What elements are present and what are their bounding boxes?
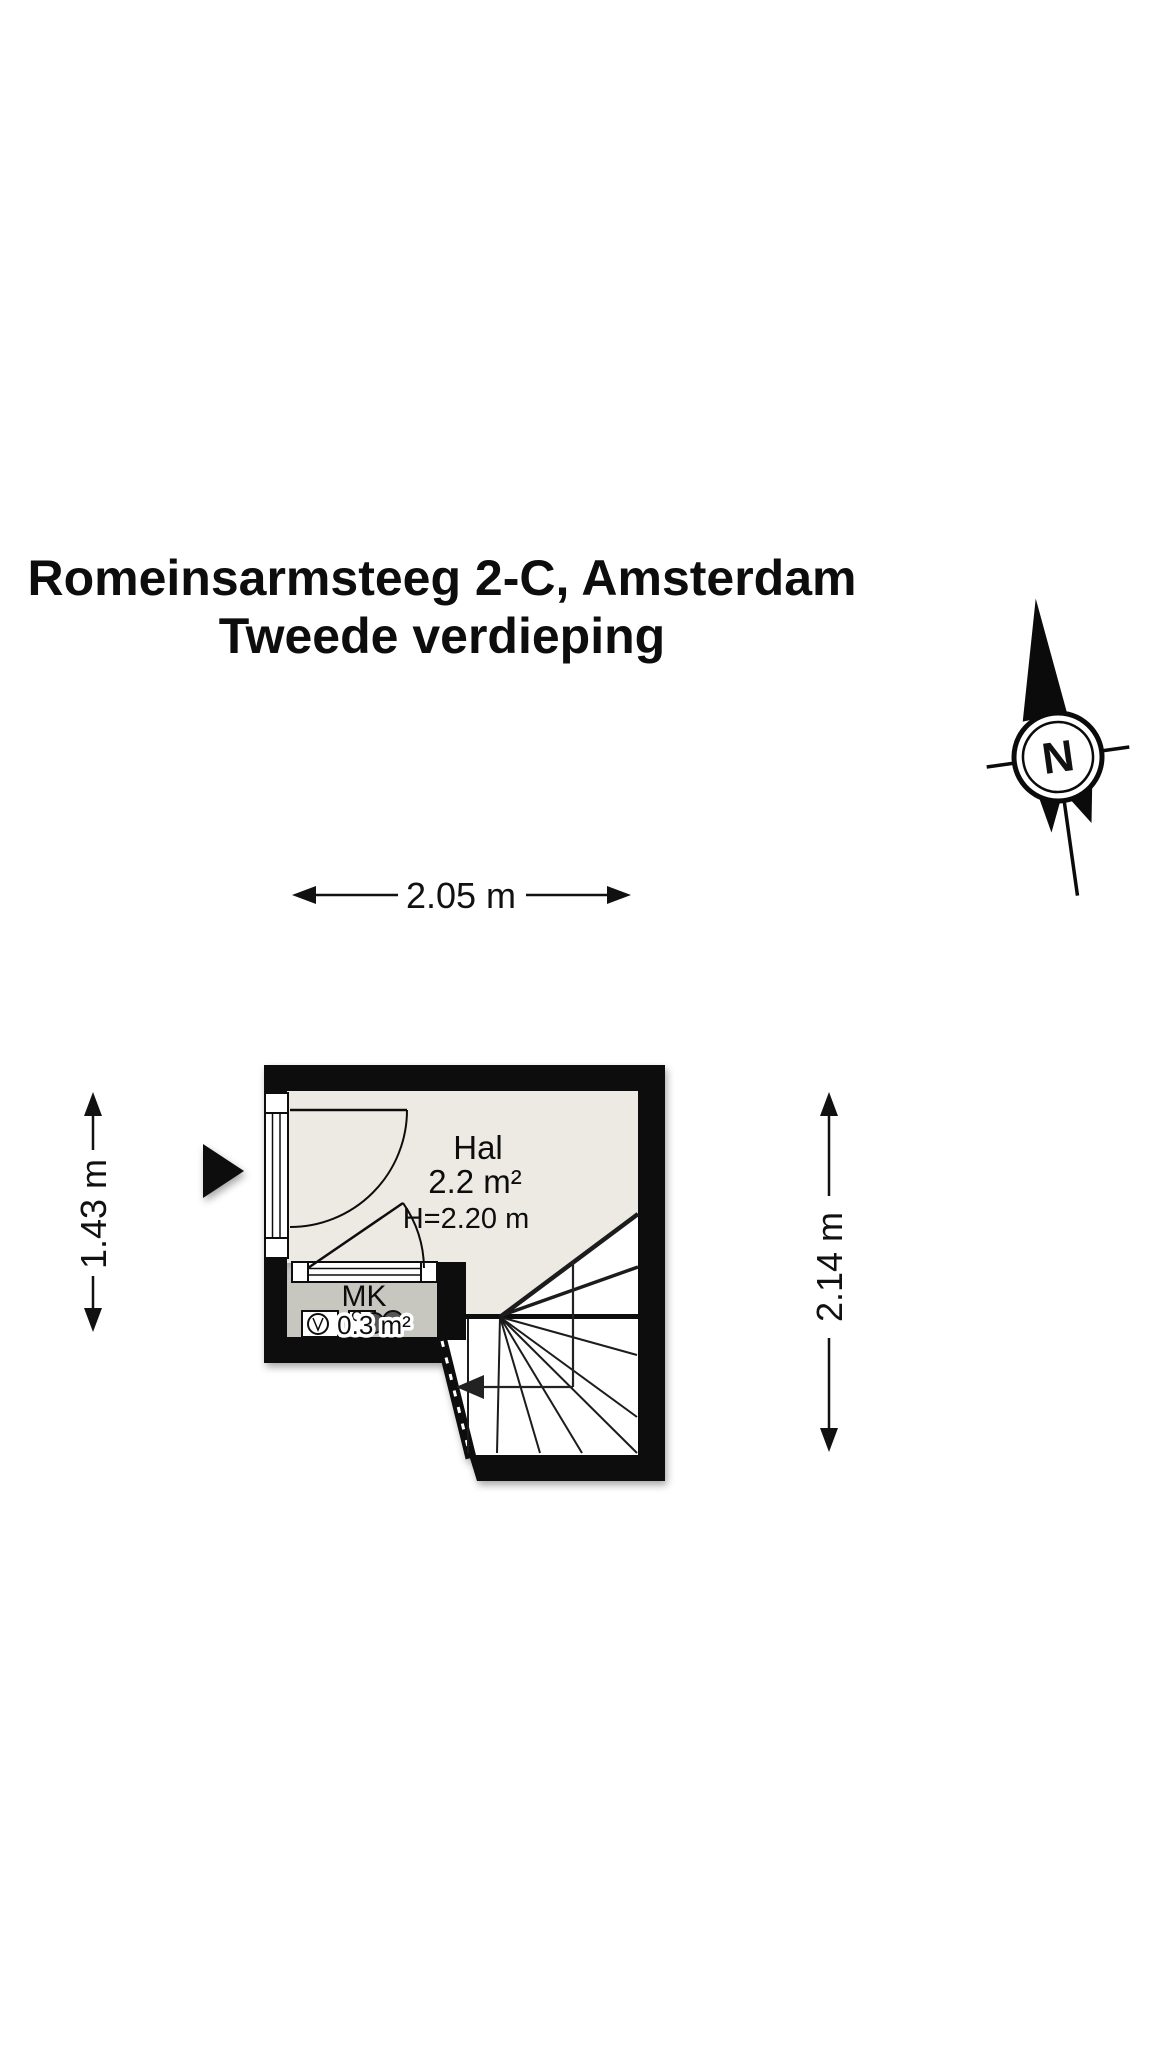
room-label-hal: Hal — [453, 1129, 503, 1166]
wall-mk-right — [437, 1262, 466, 1340]
wall-top — [264, 1065, 665, 1091]
compass-needle-icon — [1006, 596, 1067, 721]
dimension-top: 2.05 m — [292, 872, 631, 916]
room-area-hal: 2.2 m² — [428, 1163, 522, 1200]
dimension-top-label: 2.05 m — [406, 875, 516, 916]
dimension-left-label: 1.43 m — [73, 1159, 114, 1269]
floor-plan: 0.3 m² Hal 2.2 m² H=2.20 m MK — [203, 1065, 665, 1481]
arrowhead-down-icon — [820, 1428, 838, 1452]
north-compass: N — [964, 589, 1148, 906]
mk-meters: 0.3 m² — [302, 1310, 411, 1340]
arrowhead-left-icon — [292, 886, 316, 904]
compass-tick-east — [1104, 747, 1130, 751]
stair-top-edge — [437, 1314, 638, 1319]
floor-plan-canvas: 2.05 m 1.43 m 2.14 m — [0, 0, 1152, 2048]
arrowhead-up-icon — [820, 1092, 838, 1116]
room-label-mk: MK — [342, 1280, 387, 1313]
room-height-hal: H=2.20 m — [403, 1203, 530, 1235]
arrowhead-down-icon — [84, 1308, 102, 1332]
dimension-right: 2.14 m — [807, 1092, 851, 1452]
entrance-door-frame — [265, 1093, 288, 1258]
arrowhead-right-icon — [607, 886, 631, 904]
compass-north-label: N — [1039, 731, 1077, 784]
wall-right — [638, 1065, 665, 1480]
floorplan-page: Romeinsarmsteeg 2-C, Amsterdam Tweede ve… — [0, 0, 1152, 2048]
compass-tail — [1064, 797, 1078, 896]
mk-area-label: 0.3 m² — [337, 1310, 411, 1340]
wall-mk-bottom — [264, 1337, 452, 1363]
arrowhead-up-icon — [84, 1092, 102, 1116]
door-frame-outline — [265, 1093, 288, 1258]
wall-stair-bottom — [469, 1455, 665, 1481]
entrance-arrow-icon — [203, 1144, 244, 1198]
dimension-right-label: 2.14 m — [809, 1212, 850, 1322]
dimension-left: 1.43 m — [71, 1092, 115, 1332]
compass-tick-west — [987, 763, 1013, 767]
